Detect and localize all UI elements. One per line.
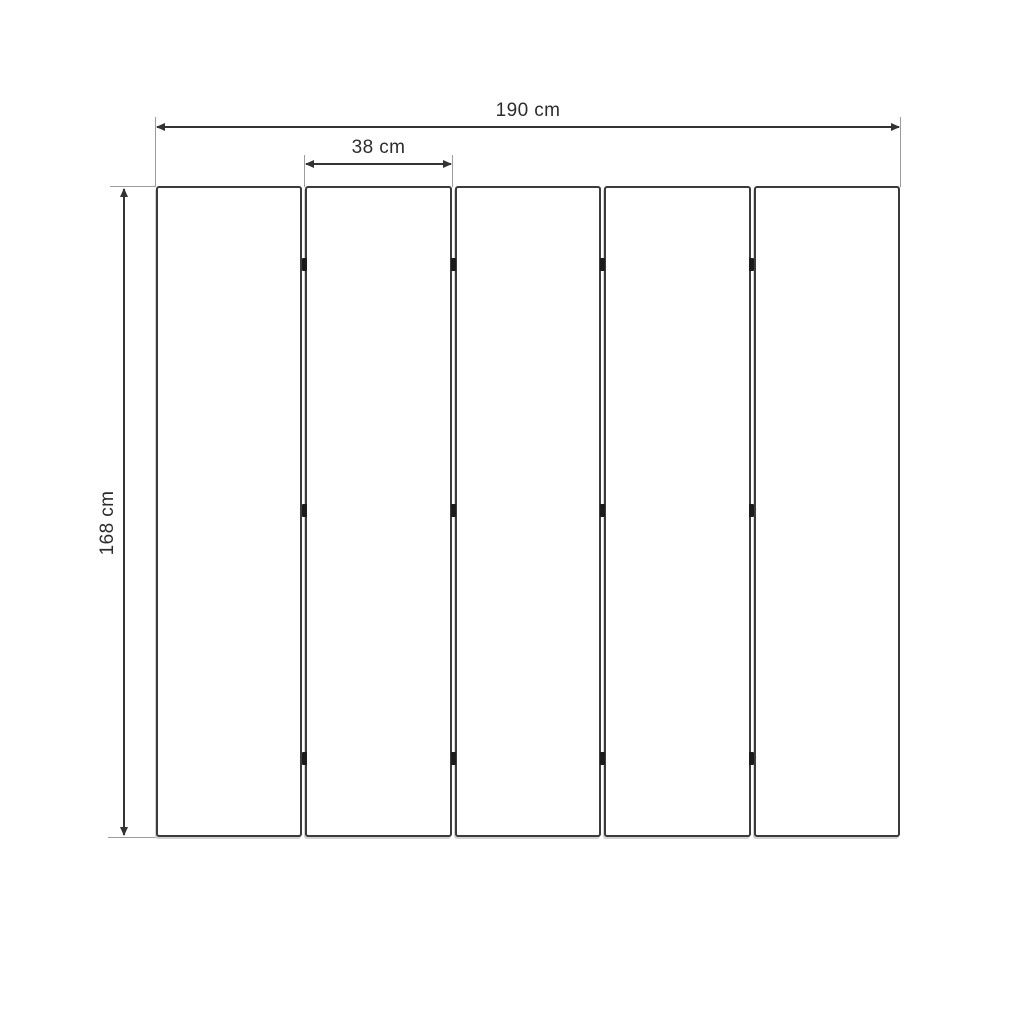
arrowhead-left-icon xyxy=(156,123,165,131)
folding-screen xyxy=(156,186,900,837)
hinge-icon xyxy=(749,258,754,271)
panel-5 xyxy=(754,186,900,837)
total-width-label: 190 cm xyxy=(156,100,900,122)
height-label: 168 cm xyxy=(97,481,119,565)
arrowhead-right-icon xyxy=(891,123,900,131)
total-width-dimension-line xyxy=(157,126,899,128)
arrowhead-right-icon xyxy=(443,160,452,168)
hinge-icon xyxy=(302,258,307,271)
panel-4 xyxy=(604,186,750,837)
panel-1 xyxy=(156,186,302,837)
hinge-icon xyxy=(600,504,605,517)
panel-2 xyxy=(305,186,451,837)
extension-line-right-of-panel-width xyxy=(452,155,453,187)
extension-line-right-of-total-width xyxy=(900,117,901,187)
hinge-icon xyxy=(451,258,456,271)
panel-width-label: 38 cm xyxy=(305,137,452,159)
hinge-icon xyxy=(302,504,307,517)
arrowhead-up-icon xyxy=(120,188,128,197)
hinge-icon xyxy=(600,752,605,765)
arrowhead-down-icon xyxy=(120,827,128,836)
extension-line-top-of-height xyxy=(110,186,156,187)
hinge-icon xyxy=(302,752,307,765)
panel-3 xyxy=(455,186,601,837)
extension-line-bottom-of-height xyxy=(108,837,156,838)
hinge-icon xyxy=(600,258,605,271)
hinge-icon xyxy=(451,504,456,517)
arrowhead-left-icon xyxy=(305,160,314,168)
hinge-icon xyxy=(749,504,754,517)
hinge-icon xyxy=(749,752,754,765)
height-dimension-line xyxy=(123,189,125,835)
dimension-diagram-canvas: 190 cm 38 cm 168 cm xyxy=(0,0,1024,1024)
panel-width-dimension-line xyxy=(306,163,451,165)
hinge-icon xyxy=(451,752,456,765)
